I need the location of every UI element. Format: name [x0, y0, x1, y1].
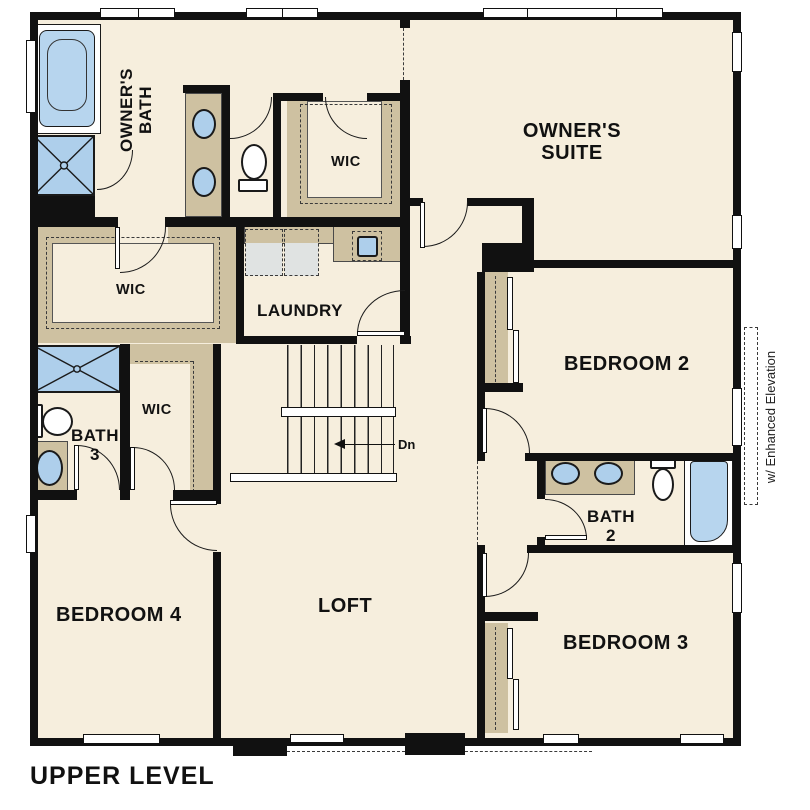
room-label-line: OWNER'S — [492, 120, 652, 142]
window — [290, 734, 344, 743]
stoop — [405, 733, 465, 755]
wall — [527, 545, 741, 553]
bathtub-basin — [47, 39, 87, 111]
wall — [30, 12, 38, 746]
wall — [525, 453, 741, 461]
room-label-line: 2 — [571, 526, 651, 545]
closet-door-panel — [507, 628, 513, 679]
bathtub — [690, 461, 728, 542]
roofline-dash-left — [287, 751, 405, 752]
wall — [477, 545, 485, 553]
door-leaf — [482, 553, 487, 597]
wall — [213, 344, 221, 504]
room-label-line: BATH — [571, 507, 651, 526]
closet-door-panel — [513, 330, 519, 383]
wall — [477, 453, 485, 461]
room-label-hall-wic: WIC — [116, 282, 146, 298]
window — [483, 8, 663, 18]
door-leaf — [170, 500, 217, 505]
window — [680, 734, 724, 744]
stair-rail-middle — [281, 407, 396, 417]
room-label-line: OWNER'S — [117, 55, 136, 165]
room-label-bath3: BATH 3 — [55, 426, 135, 464]
roofline-dash-right — [465, 751, 592, 752]
stairs-upper-flight — [287, 345, 394, 407]
window — [83, 734, 160, 744]
bedroom3-closet-line — [495, 627, 496, 730]
bedroom3-closet-shelf — [485, 623, 508, 733]
room-label-bath2: BATH 2 — [571, 507, 651, 545]
window — [732, 32, 742, 72]
owners-bath-opening — [403, 28, 404, 80]
wall — [173, 490, 221, 500]
window — [732, 563, 742, 613]
wall — [483, 383, 523, 392]
sink-icon — [192, 109, 216, 139]
wall — [273, 93, 323, 101]
wall — [120, 344, 130, 500]
sink-icon — [192, 167, 216, 197]
room-label-owners-wic: WIC — [331, 154, 361, 170]
room-label-line: 3 — [55, 445, 135, 464]
wall — [537, 453, 545, 499]
wall — [183, 85, 230, 93]
bedroom2-closet-line — [495, 276, 496, 382]
floor-plan: OWNER'S BATH WIC WIC LAUNDRY OWNER'S SUI… — [0, 0, 810, 810]
window — [100, 8, 175, 18]
door-leaf — [357, 331, 405, 336]
toilet-bowl-icon — [652, 468, 674, 501]
wall — [30, 217, 118, 227]
wall — [733, 12, 741, 746]
room-label-bedroom3: BEDROOM 3 — [563, 632, 689, 655]
toilet-tank-icon — [238, 179, 268, 192]
bedroom2-closet-shelf — [485, 272, 508, 383]
shower-icon — [33, 135, 95, 196]
door-leaf — [420, 202, 425, 248]
closet-door-panel — [513, 679, 519, 730]
wall — [405, 336, 411, 344]
shower-icon — [33, 345, 121, 393]
window — [732, 388, 742, 446]
door-leaf — [115, 227, 120, 269]
window-mullion — [527, 9, 528, 17]
page-title: UPPER LEVEL — [30, 762, 215, 791]
enhanced-elevation-outline — [744, 327, 758, 505]
toilet-bowl-icon — [241, 144, 267, 180]
wall — [483, 612, 538, 621]
room-label-line: BATH — [136, 55, 155, 165]
wall — [236, 336, 357, 344]
room-label-bedroom4: BEDROOM 4 — [56, 604, 182, 627]
wall — [30, 490, 77, 500]
room-label-loft: LOFT — [318, 595, 372, 618]
wall — [400, 80, 410, 198]
dryer-outline — [284, 229, 319, 276]
wall — [400, 12, 410, 28]
wall — [236, 223, 244, 344]
window — [26, 515, 36, 553]
wall — [534, 260, 741, 268]
wall — [165, 217, 410, 227]
washer-outline — [245, 229, 283, 276]
sink-icon — [551, 462, 580, 485]
bedroom4-wic-shelf-line-v — [193, 361, 194, 492]
bedroom4-wic-shelf-line-h — [135, 361, 193, 362]
room-label-line: SUITE — [492, 142, 652, 164]
room-label-laundry: LAUNDRY — [257, 301, 343, 321]
room-label-owners-bath: OWNER'S BATH — [117, 55, 157, 165]
window — [26, 40, 36, 113]
door-leaf — [482, 408, 487, 453]
window — [543, 734, 579, 744]
stair-rail-bottom — [230, 473, 397, 482]
stairs-down-arrow-icon — [334, 439, 345, 449]
room-label-bedroom4-wic: WIC — [142, 402, 172, 418]
window-mullion — [138, 9, 139, 17]
closet-door-panel — [507, 277, 513, 330]
sink-icon — [594, 462, 623, 485]
loft-hall-boundary — [477, 461, 478, 545]
window — [246, 8, 318, 18]
window — [732, 215, 742, 249]
elevation-note: w/ Enhanced Elevation — [763, 322, 779, 512]
wall — [467, 198, 534, 206]
wall — [222, 93, 230, 217]
wall — [482, 243, 534, 272]
wall — [273, 93, 281, 217]
laundry-sink — [357, 236, 378, 257]
stoop — [233, 738, 287, 756]
room-label-owners-suite: OWNER'S SUITE — [492, 120, 652, 165]
stairs-down-arrow-line — [345, 444, 395, 445]
room-label-line: BATH — [55, 426, 135, 445]
wall — [213, 552, 221, 746]
wall — [30, 196, 95, 217]
room-label-bedroom2: BEDROOM 2 — [564, 353, 690, 376]
window-mullion — [616, 9, 617, 17]
stairs-down-label: Dn — [398, 437, 415, 452]
wall — [367, 93, 400, 101]
window-mullion — [282, 9, 283, 17]
